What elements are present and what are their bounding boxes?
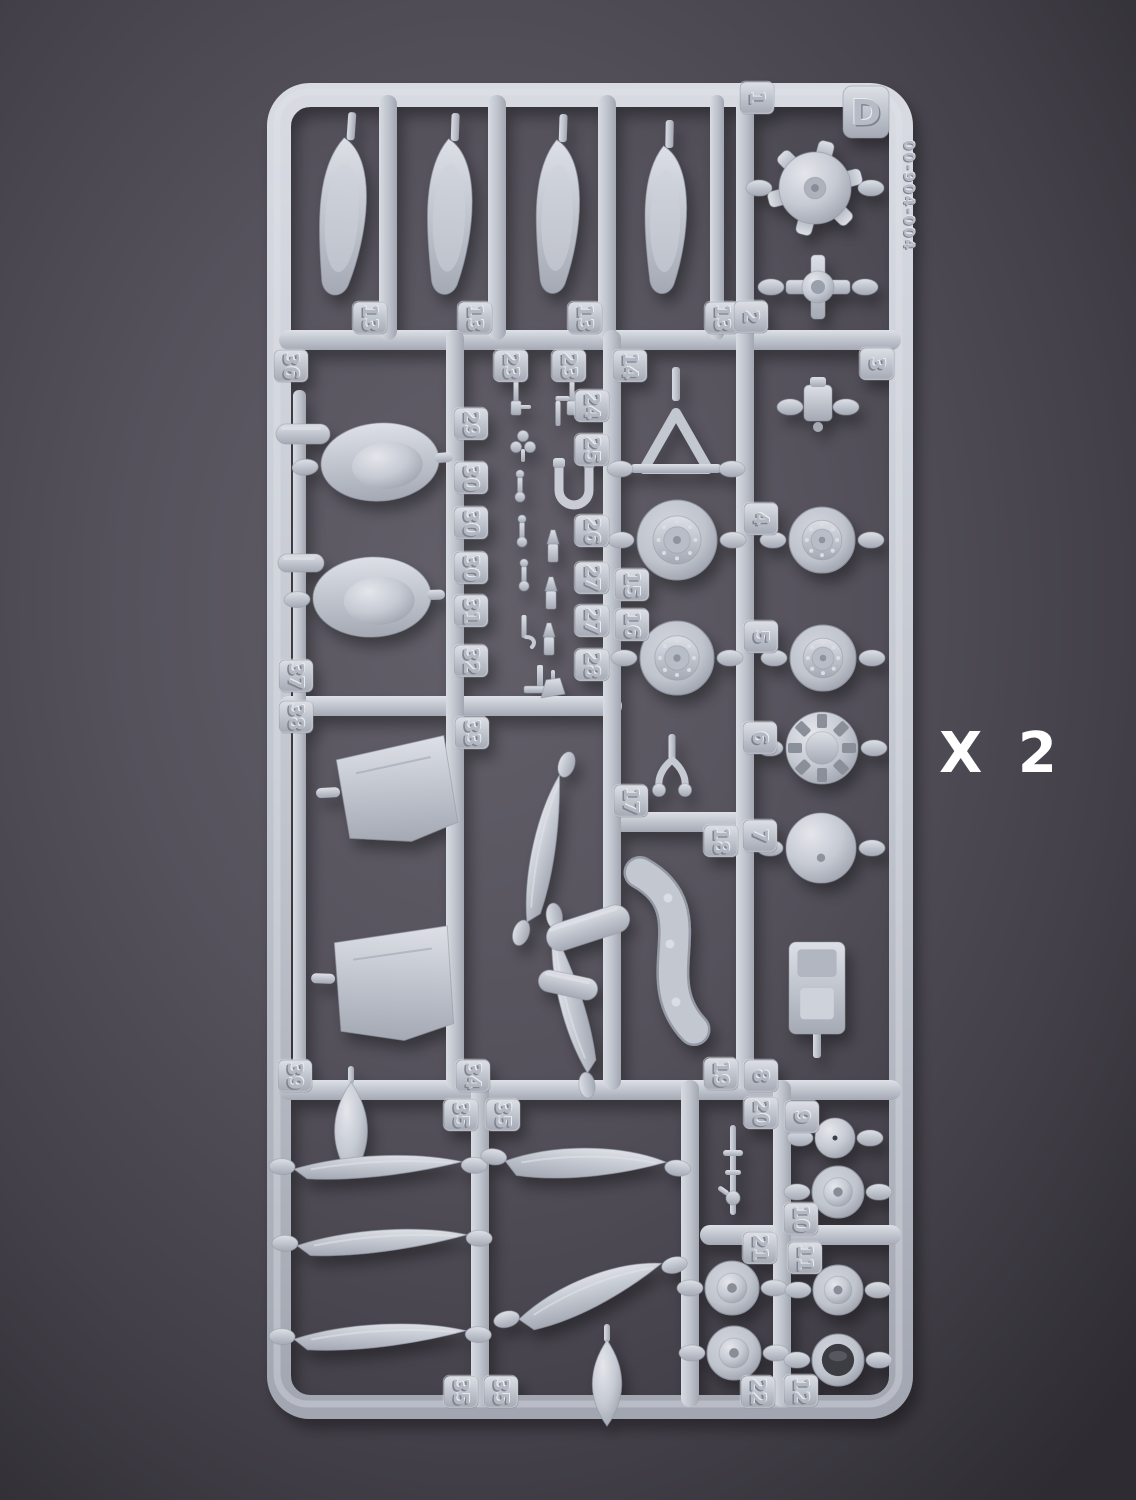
mold-code: 00-904-004: [900, 140, 918, 251]
part-number-tag-23: 232323: [551, 349, 586, 382]
svg-text:10: 10: [789, 1205, 813, 1233]
svg-text:16: 16: [620, 611, 644, 639]
part-number-tag-20: 202020: [743, 1096, 778, 1129]
svg-text:22: 22: [746, 1378, 770, 1406]
svg-text:13: 13: [358, 304, 382, 332]
part-number-tag-3: 333: [859, 347, 894, 380]
svg-text:13: 13: [463, 304, 487, 332]
svg-text:38: 38: [284, 703, 308, 731]
svg-text:27: 27: [580, 564, 604, 592]
svg-text:35: 35: [449, 1101, 473, 1129]
svg-text:23: 23: [499, 352, 523, 380]
part-number-tag-15: 151515: [614, 568, 649, 601]
svg-text:1: 1: [745, 91, 769, 105]
part-number-tag-35: 353535: [443, 1098, 478, 1131]
sprue-letter: D: [851, 93, 881, 134]
runner-vertical: [598, 95, 616, 340]
svg-text:13: 13: [573, 304, 597, 332]
svg-text:14: 14: [618, 352, 642, 380]
svg-text:30: 30: [459, 554, 483, 582]
part-number-tag-28: 282828: [574, 648, 609, 681]
svg-text:5: 5: [749, 630, 773, 644]
part-number-tag-17: 171717: [613, 784, 648, 817]
svg-text:4: 4: [749, 512, 773, 526]
part-number-tag-24: 242424: [574, 389, 609, 422]
svg-text:7: 7: [748, 829, 772, 843]
part-number-tag-29: 292929: [453, 407, 488, 440]
svg-text:30: 30: [459, 464, 483, 492]
part-number-tag-35: 353535: [483, 1375, 518, 1408]
svg-text:15: 15: [620, 571, 644, 599]
svg-text:35: 35: [489, 1378, 513, 1406]
svg-text:35: 35: [491, 1101, 515, 1129]
part-number-tag-1: 111: [739, 81, 774, 114]
svg-text:20: 20: [749, 1099, 773, 1127]
quantity-multiplier-label: X 2: [939, 721, 1065, 786]
part-number-tag-31: 313131: [453, 594, 488, 627]
part-number-tag-23: 232323: [493, 349, 528, 382]
svg-text:33: 33: [460, 719, 484, 747]
part-number-tag-16: 161616: [614, 608, 649, 641]
svg-text:6: 6: [748, 731, 772, 745]
svg-text:39: 39: [283, 1062, 307, 1090]
svg-text:2: 2: [739, 310, 763, 324]
svg-text:31: 31: [459, 597, 483, 625]
part-number-tag-30: 303030: [453, 461, 488, 494]
svg-text:27: 27: [580, 607, 604, 635]
svg-text:12: 12: [789, 1377, 813, 1405]
part-number-tag-5: 555: [743, 620, 778, 653]
part-number-tag-6: 666: [742, 721, 777, 754]
part-number-tag-37: 373737: [278, 659, 313, 692]
svg-text:25: 25: [580, 436, 604, 464]
part-number-tag-4: 444: [743, 502, 778, 535]
part-number-tag-9: 999: [784, 1100, 819, 1133]
part-number-tag-13: 131313: [352, 301, 387, 334]
svg-text:17: 17: [619, 787, 643, 815]
part-number-tag-12: 121212: [783, 1374, 818, 1407]
svg-text:29: 29: [459, 410, 483, 438]
part-number-tag-19: 191919: [703, 1057, 738, 1090]
runner-vertical: [736, 95, 754, 1090]
part-number-tag-39: 393939: [277, 1059, 312, 1092]
svg-text:28: 28: [580, 651, 604, 679]
part-number-tag-30: 303030: [453, 506, 488, 539]
part-number-tag-34: 343434: [455, 1059, 490, 1092]
part-number-tag-27: 272727: [574, 561, 609, 594]
mold-code-label: 00-904-004 00-904-004 00-904-004: [899, 139, 919, 252]
svg-text:32: 32: [459, 647, 483, 675]
part-number-tag-27: 272727: [574, 604, 609, 637]
svg-text:36: 36: [279, 352, 303, 380]
svg-text:24: 24: [580, 392, 604, 420]
part-number-tag-11: 111111: [787, 1241, 822, 1274]
part-number-tag-22: 222222: [740, 1375, 775, 1408]
runner-vertical: [488, 95, 506, 340]
svg-text:26: 26: [580, 517, 604, 545]
part-number-tag-13: 131313: [457, 301, 492, 334]
runner-vertical: [293, 390, 306, 1090]
model-kit-sprue-photo: 1111313131313131313131313132223333636362…: [0, 0, 1136, 1500]
part-number-tag-26: 262626: [574, 514, 609, 547]
small-capsule-part: [276, 424, 330, 444]
part-number-tag-14: 141414: [612, 349, 647, 382]
small-capsule-part: [278, 554, 324, 572]
part-number-tag-32: 323232: [453, 644, 488, 677]
svg-text:9: 9: [790, 1110, 814, 1124]
part-number-tag-21: 212121: [742, 1231, 777, 1264]
svg-text:35: 35: [449, 1378, 473, 1406]
part-number-tag-2: 222: [733, 300, 768, 333]
photo-canvas: 1111313131313131313131313132223333636362…: [0, 0, 1136, 1500]
svg-text:21: 21: [748, 1234, 772, 1262]
part-number-tag-33: 333333: [454, 716, 489, 749]
part-number-tag-35: 353535: [485, 1098, 520, 1131]
part-number-tag-30: 303030: [453, 551, 488, 584]
part-number-tag-13: 131313: [567, 301, 602, 334]
svg-text:18: 18: [709, 827, 733, 855]
part-number-tag-25: 252525: [574, 433, 609, 466]
part-number-tag-38: 383838: [278, 700, 313, 733]
part-number-tag-10: 101010: [783, 1202, 818, 1235]
svg-text:13: 13: [710, 304, 734, 332]
part-number-tag-18: 181818: [703, 824, 738, 857]
svg-text:8: 8: [749, 1069, 773, 1083]
part-number-tag-8: 888: [743, 1059, 778, 1092]
svg-text:23: 23: [557, 352, 581, 380]
sprue-letter-plate: D D D: [843, 86, 889, 138]
svg-text:3: 3: [865, 357, 889, 371]
part-number-tag-7: 777: [742, 819, 777, 852]
svg-text:30: 30: [459, 509, 483, 537]
svg-text:11: 11: [793, 1244, 817, 1272]
part-number-tag-35: 353535: [443, 1375, 478, 1408]
part-number-tag-36: 363636: [273, 349, 308, 382]
svg-text:34: 34: [461, 1062, 485, 1090]
svg-text:19: 19: [709, 1060, 733, 1088]
svg-text:37: 37: [284, 662, 308, 690]
